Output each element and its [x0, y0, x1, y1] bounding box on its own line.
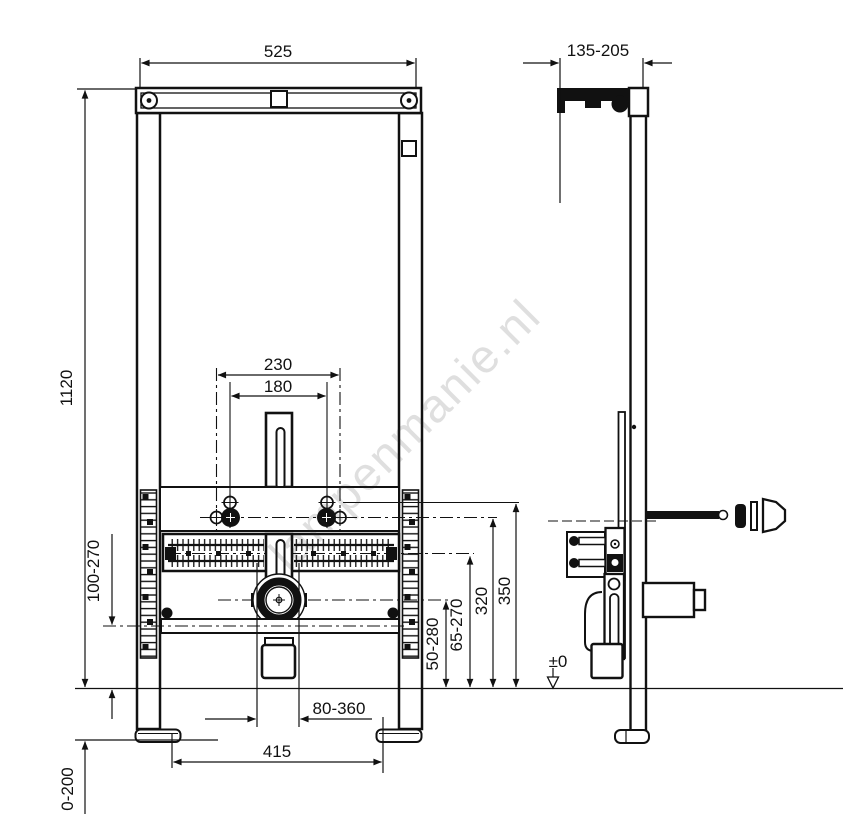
side-view — [548, 88, 785, 743]
dim-h-top-holes: 350 — [495, 577, 514, 605]
top-bar-center-hole — [271, 91, 287, 107]
wall-bracket — [557, 88, 630, 113]
side-foot — [615, 730, 649, 743]
side-foot-box — [592, 644, 623, 678]
dim-holes-outer: 230 — [264, 355, 292, 374]
top-bar-left-bolt-hole — [141, 93, 157, 109]
dim-height-total: 1120 — [57, 370, 76, 407]
dim-feet-spacing: 415 — [263, 742, 291, 761]
side-rail — [629, 88, 648, 734]
bolt-hole-filled — [221, 508, 240, 527]
dim-h-rack: 65-270 — [447, 599, 466, 652]
left-rail-rack-strip — [141, 490, 157, 658]
installation-drawing-page: lampenmanie.nl — [0, 0, 865, 834]
right-rail-rack-strip — [403, 490, 419, 658]
technical-drawing: 525 135-205 1120 230 180 100-270 0-200 5… — [0, 0, 865, 834]
horizontal-rack — [163, 534, 474, 589]
center-slot-bracket — [266, 413, 292, 489]
floor-level-label: ±0 — [549, 652, 568, 671]
floor-level-arrow — [548, 668, 559, 688]
water-connection-bracket — [567, 528, 625, 580]
rail-pin — [632, 425, 636, 429]
dim-width-top: 525 — [264, 42, 292, 61]
outlet-box — [262, 638, 295, 678]
dim-lower-bar: 100-270 — [84, 540, 103, 602]
dim-h-fix-holes: 320 — [472, 587, 491, 615]
lower-bar-right-joint — [388, 608, 399, 619]
right-rail-square-hole — [402, 141, 416, 156]
threaded-rod-and-anchor — [548, 499, 785, 532]
top-bar-right-bolt-hole — [401, 93, 417, 109]
dimensions — [77, 58, 672, 814]
frame-top-bar — [136, 88, 421, 113]
dim-foot-adjust: 0-200 — [58, 767, 77, 810]
dim-holes-inner: 180 — [264, 377, 292, 396]
dim-h-drain: 50-280 — [423, 618, 442, 671]
wall-anchor-cone — [763, 499, 785, 532]
bolt-hole-filled — [317, 508, 336, 527]
upper-bracket-bar — [160, 487, 399, 531]
dim-depth: 135-205 — [567, 41, 629, 60]
dim-drain-offset: 80-360 — [313, 699, 366, 718]
lower-bar-left-joint — [162, 608, 173, 619]
outlet-pipe — [643, 583, 705, 617]
